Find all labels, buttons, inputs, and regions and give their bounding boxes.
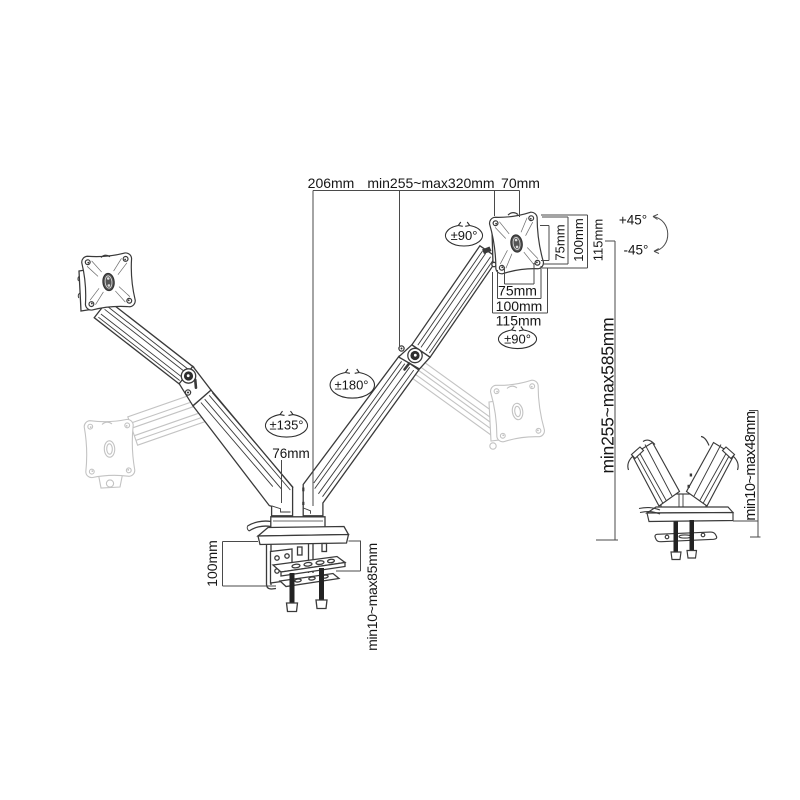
svg-text:115mm: 115mm	[591, 219, 606, 261]
svg-text:min255~max585mm: min255~max585mm	[598, 317, 618, 473]
svg-text:75mm: 75mm	[553, 224, 568, 260]
svg-text:206mm: 206mm	[308, 175, 355, 191]
svg-text:+45°: +45°	[619, 213, 647, 228]
svg-text:76mm: 76mm	[272, 446, 310, 461]
svg-text:min10~max48mm: min10~max48mm	[743, 411, 759, 521]
svg-text:70mm: 70mm	[501, 175, 540, 191]
svg-text:100mm: 100mm	[204, 540, 220, 587]
svg-text:115mm: 115mm	[496, 313, 542, 329]
svg-text:±135°: ±135°	[269, 418, 303, 433]
svg-text:±90°: ±90°	[451, 228, 478, 243]
svg-text:75mm: 75mm	[498, 283, 537, 299]
svg-text:±90°: ±90°	[504, 332, 531, 347]
svg-text:min10~max85mm: min10~max85mm	[364, 543, 380, 651]
svg-text:-45°: -45°	[624, 243, 649, 258]
svg-text:±180°: ±180°	[334, 378, 368, 393]
svg-text:100mm: 100mm	[571, 218, 586, 261]
svg-text:min255~max320mm: min255~max320mm	[367, 175, 494, 191]
